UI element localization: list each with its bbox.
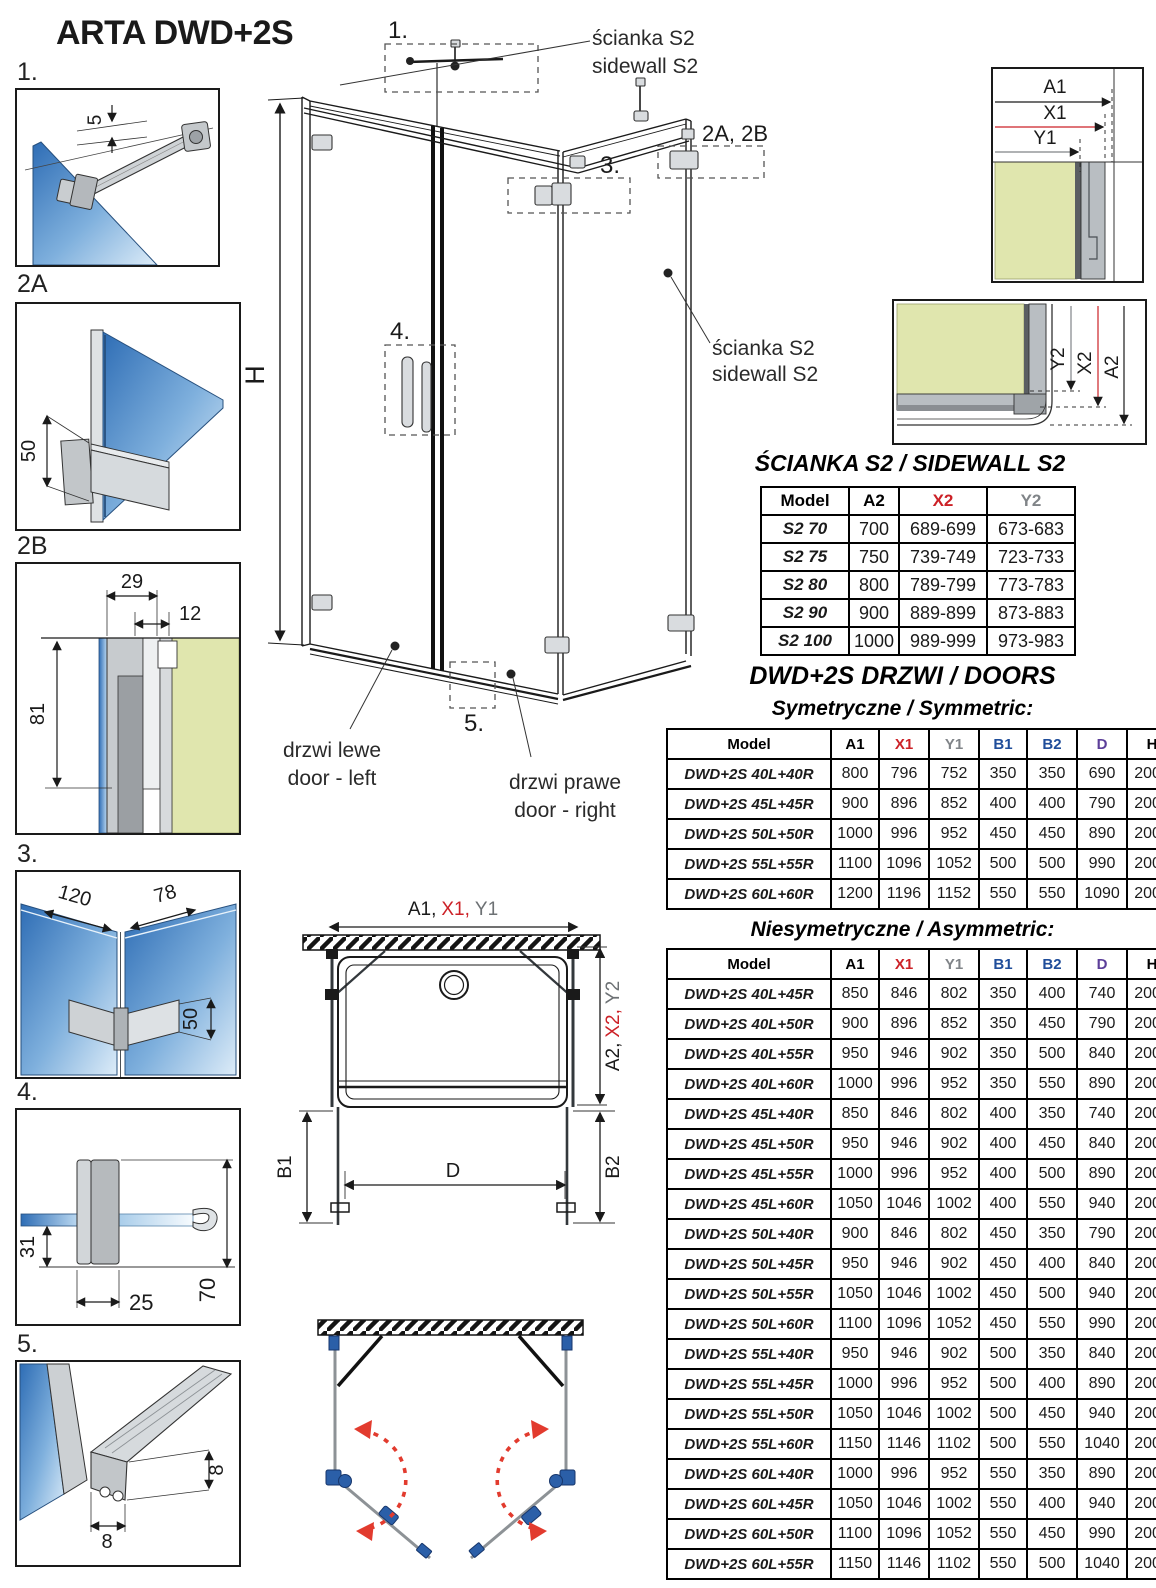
plan-x2: X2, <box>603 1009 624 1038</box>
value-cell: 500 <box>979 1429 1027 1459</box>
value-cell: 946 <box>879 1129 929 1159</box>
detail-1-label: 1. <box>17 58 38 87</box>
detail-5-label: 5. <box>17 1330 38 1359</box>
value-cell: 996 <box>879 1159 929 1189</box>
table-row: DWD+2S 45L+55R10009969524005008902000 <box>667 1159 1156 1189</box>
column-header: B1 <box>979 729 1027 759</box>
value-cell: 1052 <box>929 849 979 879</box>
value-cell: 2000 <box>1127 1519 1156 1549</box>
sidewall-label-right-pl: ścianka S2 <box>712 337 815 360</box>
value-cell: 350 <box>979 759 1027 789</box>
table-row: DWD+2S 50L+55R1050104610024505009402000 <box>667 1279 1156 1309</box>
value-cell: 450 <box>979 1249 1027 1279</box>
model-cell: DWD+2S 55L+45R <box>667 1369 831 1399</box>
value-cell: 1096 <box>879 849 929 879</box>
plan-a1: A1, <box>408 899 437 920</box>
value-cell: 790 <box>1077 1219 1127 1249</box>
value-cell: 1146 <box>879 1549 929 1579</box>
model-cell: S2 100 <box>761 627 849 655</box>
callout-2ab: 2A, 2B <box>702 121 768 146</box>
value-cell: 2000 <box>1127 1339 1156 1369</box>
value-cell: 750 <box>849 543 899 571</box>
sidewall-table: ModelA2X2Y2S2 70700689-699673-683S2 7575… <box>760 486 1076 656</box>
detail-3-drawing: 120 78 50 <box>15 870 241 1079</box>
value-cell: 550 <box>979 1549 1027 1579</box>
value-cell: 946 <box>879 1039 929 1069</box>
detail-1-drawing: 5 <box>15 88 220 267</box>
value-cell: 940 <box>1077 1399 1127 1429</box>
dim-8-bottom-label: 8 <box>101 1531 112 1553</box>
wall-mount-icon <box>181 121 211 151</box>
value-cell: 450 <box>979 1309 1027 1339</box>
dim-50-label: 50 <box>18 440 40 462</box>
detail-2a-label: 2A <box>17 270 48 299</box>
value-cell: 952 <box>929 1459 979 1489</box>
value-cell: 1000 <box>831 1459 879 1489</box>
value-cell: 550 <box>1027 1189 1077 1219</box>
value-cell: 802 <box>929 1219 979 1249</box>
dim-12-label: 12 <box>179 603 201 625</box>
callout-5: 5. <box>464 710 484 737</box>
value-cell: 2000 <box>1127 849 1156 879</box>
value-cell: 1046 <box>879 1489 929 1519</box>
table-row: DWD+2S 40L+40R8007967523503506902000 <box>667 759 1156 789</box>
table-row: S2 70700689-699673-683 <box>761 515 1075 543</box>
value-cell: 350 <box>979 979 1027 1009</box>
value-cell: 689-699 <box>899 515 987 543</box>
value-cell: 940 <box>1077 1279 1127 1309</box>
table-row: DWD+2S 60L+40R10009969525503508902000 <box>667 1459 1156 1489</box>
value-cell: 950 <box>831 1129 879 1159</box>
table-row: DWD+2S 60L+50R1100109610525504509902000 <box>667 1519 1156 1549</box>
value-cell: 2000 <box>1127 1369 1156 1399</box>
value-cell: 950 <box>831 1339 879 1369</box>
value-cell: 500 <box>1027 1549 1077 1579</box>
value-cell: 840 <box>1077 1339 1127 1369</box>
value-cell: 1040 <box>1077 1429 1127 1459</box>
value-cell: 400 <box>1027 979 1077 1009</box>
table-row: DWD+2S 40L+50R9008968523504507902000 <box>667 1009 1156 1039</box>
value-cell: 2000 <box>1127 1279 1156 1309</box>
value-cell: 889-899 <box>899 599 987 627</box>
column-header: B2 <box>1027 949 1077 979</box>
value-cell: 739-749 <box>899 543 987 571</box>
value-cell: 500 <box>1027 1039 1077 1069</box>
value-cell: 1002 <box>929 1279 979 1309</box>
dim-x2-label: X2 <box>1075 351 1096 374</box>
column-header: Y2 <box>987 487 1075 515</box>
value-cell: 846 <box>879 1099 929 1129</box>
value-cell: 1000 <box>849 627 899 655</box>
header-row: ModelA1X1Y1B1B2DH <box>667 949 1156 979</box>
value-cell: 1052 <box>929 1309 979 1339</box>
value-cell: 1090 <box>1077 879 1127 909</box>
value-cell: 850 <box>831 1099 879 1129</box>
model-cell: DWD+2S 50L+45R <box>667 1249 831 1279</box>
value-cell: 952 <box>929 1159 979 1189</box>
value-cell: 2000 <box>1127 1309 1156 1339</box>
value-cell: 952 <box>929 1369 979 1399</box>
column-header: Model <box>667 729 831 759</box>
asymmetric-table: ModelA1X1Y1B1B2DHDWD+2S 40L+45R850846802… <box>666 948 1156 1580</box>
dim-a1-label: A1 <box>1043 77 1066 98</box>
model-cell: S2 80 <box>761 571 849 599</box>
model-cell: DWD+2S 45L+45R <box>667 789 831 819</box>
door-swing-drawing <box>262 1292 658 1588</box>
value-cell: 1046 <box>879 1189 929 1219</box>
model-cell: DWD+2S 50L+60R <box>667 1309 831 1339</box>
value-cell: 400 <box>1027 1369 1077 1399</box>
value-cell: 996 <box>879 819 929 849</box>
plan-b2-label: B2 <box>603 1155 624 1178</box>
value-cell: 450 <box>1027 819 1077 849</box>
value-cell: 902 <box>929 1249 979 1279</box>
value-cell: 990 <box>1077 1309 1127 1339</box>
column-header: B1 <box>979 949 1027 979</box>
value-cell: 350 <box>1027 759 1077 789</box>
dim-29-label: 29 <box>121 571 143 593</box>
value-cell: 1102 <box>929 1429 979 1459</box>
table-row: DWD+2S 50L+40R9008468024503507902000 <box>667 1219 1156 1249</box>
value-cell: 2000 <box>1127 1099 1156 1129</box>
model-cell: DWD+2S 50L+40R <box>667 1219 831 1249</box>
hinge-hardware-icons <box>326 1336 575 1558</box>
value-cell: 450 <box>1027 1009 1077 1039</box>
column-header: Model <box>667 949 831 979</box>
detail-2b-drawing: 29 12 81 <box>15 562 241 835</box>
value-cell: 2000 <box>1127 1159 1156 1189</box>
column-header: Y1 <box>929 729 979 759</box>
value-cell: 500 <box>979 1339 1027 1369</box>
model-cell: DWD+2S 40L+55R <box>667 1039 831 1069</box>
value-cell: 789-799 <box>899 571 987 599</box>
dim-81-label: 81 <box>27 703 49 725</box>
table-row: DWD+2S 55L+60R11501146110250055010402000 <box>667 1429 1156 1459</box>
value-cell: 1002 <box>929 1399 979 1429</box>
table-row: DWD+2S 40L+60R10009969523505508902000 <box>667 1069 1156 1099</box>
value-cell: 990 <box>1077 849 1127 879</box>
value-cell: 673-683 <box>987 515 1075 543</box>
table-row: DWD+2S 55L+45R10009969525004008902000 <box>667 1369 1156 1399</box>
plan-y1: Y1 <box>475 899 498 920</box>
column-header: A1 <box>831 949 879 979</box>
plan-d-label: D <box>446 1160 460 1182</box>
value-cell: 400 <box>1027 1249 1077 1279</box>
value-cell: 890 <box>1077 819 1127 849</box>
dim-8-side-label: 8 <box>206 1464 228 1475</box>
value-cell: 790 <box>1077 789 1127 819</box>
value-cell: 902 <box>929 1129 979 1159</box>
value-cell: 1146 <box>879 1429 929 1459</box>
value-cell: 350 <box>979 1039 1027 1069</box>
value-cell: 2000 <box>1127 1489 1156 1519</box>
column-header: X2 <box>899 487 987 515</box>
table-row: S2 75750739-749723-733 <box>761 543 1075 571</box>
value-cell: 1152 <box>929 879 979 909</box>
value-cell: 800 <box>849 571 899 599</box>
dim-120-label: 120 <box>56 881 94 911</box>
table-row: S2 90900889-899873-883 <box>761 599 1075 627</box>
dim-5-label: 5 <box>85 115 106 126</box>
column-header: X1 <box>879 729 929 759</box>
model-cell: DWD+2S 60L+55R <box>667 1549 831 1579</box>
value-cell: 790 <box>1077 1009 1127 1039</box>
column-header: Model <box>761 487 849 515</box>
table-row: DWD+2S 45L+40R8508468024003507402000 <box>667 1099 1156 1129</box>
model-cell: DWD+2S 60L+50R <box>667 1519 831 1549</box>
value-cell: 350 <box>979 1009 1027 1039</box>
value-cell: 2000 <box>1127 1009 1156 1039</box>
value-cell: 950 <box>831 1039 879 1069</box>
model-cell: DWD+2S 60L+45R <box>667 1489 831 1519</box>
table-row: S2 1001000989-999973-983 <box>761 627 1075 655</box>
spec-sheet-page: ARTA DWD+2S 1. 5 2A 50 2 <box>0 0 1156 1588</box>
value-cell: 900 <box>831 789 879 819</box>
value-cell: 940 <box>1077 1189 1127 1219</box>
plan-right-dims-label: A2,X2,Y2 <box>603 981 624 1071</box>
value-cell: 2000 <box>1127 759 1156 789</box>
sidewall-label-top-pl: ścianka S2 <box>592 27 695 50</box>
value-cell: 773-783 <box>987 571 1075 599</box>
dim-a2-label: A2 <box>1102 355 1123 378</box>
plan-view-drawing: A1,X1,Y1 B1 A2,X2,Y2 B2 <box>255 885 665 1295</box>
value-cell: 450 <box>979 1279 1027 1309</box>
model-cell: S2 70 <box>761 515 849 543</box>
model-cell: DWD+2S 45L+40R <box>667 1099 831 1129</box>
value-cell: 450 <box>1027 1519 1077 1549</box>
value-cell: 840 <box>1077 1249 1127 1279</box>
value-cell: 500 <box>1027 1279 1077 1309</box>
value-cell: 846 <box>879 1219 929 1249</box>
corner-detail-side: Y2 X2 A2 <box>892 299 1147 445</box>
door-right-label-en: door - right <box>514 799 616 822</box>
height-dim-label: H <box>240 365 270 385</box>
table-row: DWD+2S 60L+60R12001196115255055010902000 <box>667 879 1156 909</box>
value-cell: 2000 <box>1127 1189 1156 1219</box>
dim-78-label: 78 <box>152 881 179 908</box>
symmetric-heading: Symetryczne / Symmetric: <box>655 697 1150 721</box>
value-cell: 1102 <box>929 1549 979 1579</box>
corner-detail-top: A1 X1 Y1 <box>991 67 1144 283</box>
value-cell: 1200 <box>831 879 879 909</box>
value-cell: 400 <box>1027 1489 1077 1519</box>
value-cell: 400 <box>979 789 1027 819</box>
value-cell: 1096 <box>879 1519 929 1549</box>
value-cell: 450 <box>1027 1129 1077 1159</box>
value-cell: 902 <box>929 1039 979 1069</box>
value-cell: 940 <box>1077 1489 1127 1519</box>
column-header: A1 <box>831 729 879 759</box>
value-cell: 846 <box>879 979 929 1009</box>
value-cell: 1000 <box>831 1069 879 1099</box>
asymmetric-heading: Niesymetryczne / Asymmetric: <box>655 918 1150 942</box>
dim-x1-label: X1 <box>1043 103 1066 124</box>
value-cell: 1100 <box>831 849 879 879</box>
plan-y2: Y2 <box>603 981 624 1004</box>
value-cell: 550 <box>1027 1069 1077 1099</box>
model-cell: DWD+2S 60L+60R <box>667 879 831 909</box>
value-cell: 840 <box>1077 1039 1127 1069</box>
detail-2a-drawing: 50 <box>15 302 241 531</box>
model-cell: DWD+2S 40L+60R <box>667 1069 831 1099</box>
value-cell: 890 <box>1077 1069 1127 1099</box>
table-row: DWD+2S 40L+55R9509469023505008402000 <box>667 1039 1156 1069</box>
value-cell: 2000 <box>1127 1069 1156 1099</box>
model-cell: DWD+2S 45L+60R <box>667 1189 831 1219</box>
model-cell: DWD+2S 60L+40R <box>667 1459 831 1489</box>
value-cell: 1052 <box>929 1519 979 1549</box>
value-cell: 946 <box>879 1249 929 1279</box>
column-header: D <box>1077 729 1127 759</box>
value-cell: 1050 <box>831 1489 879 1519</box>
value-cell: 873-883 <box>987 599 1075 627</box>
value-cell: 900 <box>831 1009 879 1039</box>
column-header: D <box>1077 949 1127 979</box>
table-row: DWD+2S 60L+55R11501146110255050010402000 <box>667 1549 1156 1579</box>
value-cell: 550 <box>979 879 1027 909</box>
value-cell: 1096 <box>879 1309 929 1339</box>
value-cell: 700 <box>849 515 899 543</box>
value-cell: 400 <box>979 1129 1027 1159</box>
value-cell: 500 <box>1027 1159 1077 1189</box>
value-cell: 500 <box>979 1369 1027 1399</box>
value-cell: 2000 <box>1127 1129 1156 1159</box>
value-cell: 1000 <box>831 1369 879 1399</box>
model-cell: DWD+2S 40L+50R <box>667 1009 831 1039</box>
value-cell: 1046 <box>879 1279 929 1309</box>
value-cell: 1002 <box>929 1189 979 1219</box>
table-row: DWD+2S 40L+45R8508468023504007402000 <box>667 979 1156 1009</box>
header-row: ModelA1X1Y1B1B2DH <box>667 729 1156 759</box>
value-cell: 900 <box>831 1219 879 1249</box>
plan-x1: X1, <box>441 899 470 920</box>
value-cell: 950 <box>831 1249 879 1279</box>
value-cell: 350 <box>1027 1099 1077 1129</box>
value-cell: 996 <box>879 1459 929 1489</box>
value-cell: 2000 <box>1127 1399 1156 1429</box>
value-cell: 550 <box>979 1519 1027 1549</box>
model-cell: DWD+2S 50L+55R <box>667 1279 831 1309</box>
value-cell: 550 <box>1027 1309 1077 1339</box>
model-cell: DWD+2S 55L+50R <box>667 1399 831 1429</box>
table-row: DWD+2S 55L+50R1050104610025004509402000 <box>667 1399 1156 1429</box>
dim-y2-label: Y2 <box>1048 347 1069 370</box>
table-row: DWD+2S 50L+50R10009969524504508902000 <box>667 819 1156 849</box>
value-cell: 550 <box>979 1459 1027 1489</box>
column-header: B2 <box>1027 729 1077 759</box>
table-row: DWD+2S 55L+55R1100109610525005009902000 <box>667 849 1156 879</box>
value-cell: 1100 <box>831 1519 879 1549</box>
value-cell: 752 <box>929 759 979 789</box>
model-cell: DWD+2S 55L+60R <box>667 1429 831 1459</box>
column-header: A2 <box>849 487 899 515</box>
value-cell: 350 <box>1027 1459 1077 1489</box>
value-cell: 2000 <box>1127 1549 1156 1579</box>
value-cell: 996 <box>879 1069 929 1099</box>
door-left-label-en: door - left <box>288 767 377 790</box>
sidewall-label-right-en: sidewall S2 <box>712 363 818 386</box>
value-cell: 550 <box>1027 879 1077 909</box>
value-cell: 2000 <box>1127 879 1156 909</box>
model-cell: S2 75 <box>761 543 849 571</box>
value-cell: 1046 <box>879 1399 929 1429</box>
callout-3: 3. <box>600 152 620 179</box>
value-cell: 400 <box>979 1099 1027 1129</box>
value-cell: 900 <box>849 599 899 627</box>
callout-1: 1. <box>388 17 408 44</box>
value-cell: 500 <box>979 849 1027 879</box>
model-cell: DWD+2S 40L+40R <box>667 759 831 789</box>
value-cell: 796 <box>879 759 929 789</box>
value-cell: 890 <box>1077 1459 1127 1489</box>
door-left-label-pl: drzwi lewe <box>283 739 381 762</box>
value-cell: 852 <box>929 789 979 819</box>
detail-3-label: 3. <box>17 840 38 869</box>
value-cell: 902 <box>929 1339 979 1369</box>
value-cell: 450 <box>979 1219 1027 1249</box>
value-cell: 350 <box>979 1069 1027 1099</box>
value-cell: 896 <box>879 1009 929 1039</box>
value-cell: 2000 <box>1127 1219 1156 1249</box>
value-cell: 840 <box>1077 1129 1127 1159</box>
value-cell: 1000 <box>831 1159 879 1189</box>
value-cell: 850 <box>831 979 879 1009</box>
detail-4-label: 4. <box>17 1078 38 1107</box>
model-cell: DWD+2S 55L+55R <box>667 849 831 879</box>
value-cell: 1050 <box>831 1399 879 1429</box>
value-cell: 500 <box>1027 849 1077 879</box>
value-cell: 2000 <box>1127 1249 1156 1279</box>
value-cell: 946 <box>879 1339 929 1369</box>
value-cell: 2000 <box>1127 979 1156 1009</box>
table-row: DWD+2S 45L+60R1050104610024005509402000 <box>667 1189 1156 1219</box>
value-cell: 550 <box>1027 1429 1077 1459</box>
column-header: X1 <box>879 949 929 979</box>
table-row: DWD+2S 45L+45R9008968524004007902000 <box>667 789 1156 819</box>
value-cell: 400 <box>1027 789 1077 819</box>
value-cell: 350 <box>1027 1219 1077 1249</box>
table-row: DWD+2S 50L+45R9509469024504008402000 <box>667 1249 1156 1279</box>
value-cell: 450 <box>1027 1399 1077 1429</box>
value-cell: 996 <box>879 1369 929 1399</box>
value-cell: 896 <box>879 789 929 819</box>
value-cell: 450 <box>979 819 1027 849</box>
column-header: H <box>1127 949 1156 979</box>
model-cell: DWD+2S 45L+50R <box>667 1129 831 1159</box>
value-cell: 2000 <box>1127 1459 1156 1489</box>
value-cell: 1100 <box>831 1309 879 1339</box>
dim-y1-label: Y1 <box>1033 128 1056 149</box>
table-row: DWD+2S 55L+40R9509469025003508402000 <box>667 1339 1156 1369</box>
value-cell: 500 <box>979 1399 1027 1429</box>
column-header: Y1 <box>929 949 979 979</box>
detail-4-drawing: 31 25 70 <box>15 1108 241 1326</box>
plan-top-dims-label: A1,X1,Y1 <box>408 899 498 920</box>
plan-b1-label: B1 <box>275 1155 296 1178</box>
model-cell: DWD+2S 50L+50R <box>667 819 831 849</box>
header-row: ModelA2X2Y2 <box>761 487 1075 515</box>
sidewall-label-top-en: sidewall S2 <box>592 55 698 78</box>
callout-4: 4. <box>390 318 410 345</box>
value-cell: 350 <box>1027 1339 1077 1369</box>
dim-70-label: 70 <box>195 1278 220 1302</box>
sidewall-table-heading: ŚCIANKA S2 / SIDEWALL S2 <box>745 450 1075 477</box>
value-cell: 1040 <box>1077 1549 1127 1579</box>
value-cell: 802 <box>929 1099 979 1129</box>
value-cell: 2000 <box>1127 1039 1156 1069</box>
value-cell: 2000 <box>1127 1429 1156 1459</box>
table-row: S2 80800789-799773-783 <box>761 571 1075 599</box>
